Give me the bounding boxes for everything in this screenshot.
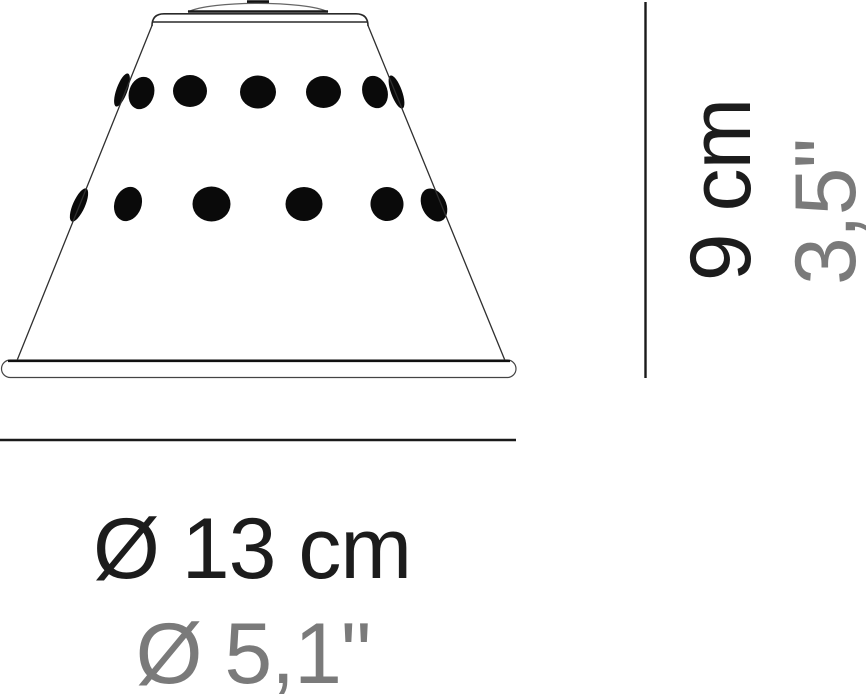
perforation-hole: [193, 187, 231, 222]
bottom-rim-band: [2, 360, 517, 378]
perforation-hole: [173, 75, 207, 107]
lampshade-drawing: [2, 2, 517, 378]
lampshade-dimension-diagram: 9 cm 3,5" Ø 13 cm Ø 5,1": [0, 0, 867, 695]
perforation-hole: [306, 76, 341, 108]
perforation-hole: [109, 183, 146, 225]
diameter-metric-label: Ø 13 cm: [93, 501, 411, 597]
perforation-hole: [286, 187, 323, 221]
height-metric-label: 9 cm: [673, 99, 769, 281]
perforation-hole: [240, 76, 276, 109]
diameter-imperial-label: Ø 5,1": [136, 606, 371, 695]
perforation-hole: [385, 74, 407, 111]
top-rim-outer-edge: [152, 14, 368, 26]
perforation-hole: [368, 184, 406, 223]
diagram-canvas: 9 cm 3,5" Ø 13 cm Ø 5,1": [0, 0, 867, 695]
dimension-annotations: 9 cm 3,5" Ø 13 cm Ø 5,1": [0, 2, 867, 695]
perforation-hole: [358, 72, 392, 111]
height-imperial-label: 3,5": [778, 139, 867, 285]
